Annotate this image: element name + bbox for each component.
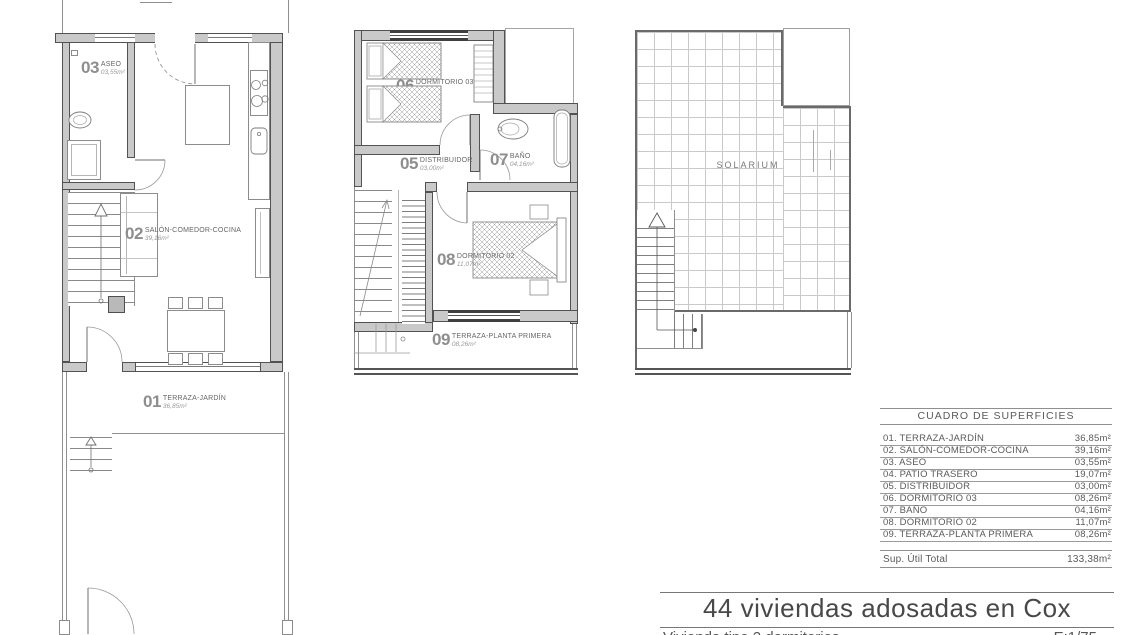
room-label-aseo: 03 ASEO 03,55m² bbox=[81, 60, 125, 76]
room-name: SALÓN-COMEDOR-COCINA bbox=[145, 227, 241, 235]
bed-pillow bbox=[369, 89, 381, 119]
patio-boundary-line bbox=[288, 0, 289, 33]
floor-plan-solarium: SOLARIUM bbox=[632, 22, 872, 380]
row-label: 05. DISTRIBUIDOR bbox=[883, 481, 970, 492]
terrace-parapet bbox=[354, 368, 578, 375]
chair bbox=[208, 297, 223, 309]
dining-table bbox=[167, 310, 225, 352]
tile-mark bbox=[813, 130, 814, 172]
entry-door-swing bbox=[155, 44, 195, 84]
room-number: 03 bbox=[81, 60, 99, 76]
shower-tray bbox=[67, 140, 101, 180]
aseo-sink bbox=[69, 112, 91, 128]
surfaces-table: CUADRO DE SUPERFICIES 01. TERRAZA-JARDÍN… bbox=[878, 403, 1114, 573]
rule-line bbox=[880, 550, 1112, 551]
parapet bbox=[635, 368, 851, 375]
chair bbox=[168, 297, 183, 309]
room-area: 36,85m² bbox=[163, 403, 226, 410]
total-value: 133,38m² bbox=[1067, 554, 1111, 565]
terrace-wall-line bbox=[62, 372, 63, 635]
room-name: ASEO bbox=[101, 61, 125, 69]
wardrobe bbox=[474, 45, 493, 102]
terrace-wall-line bbox=[572, 324, 573, 368]
row-value: 19,07m² bbox=[1075, 469, 1111, 480]
wall-segment bbox=[425, 182, 437, 192]
stair-divider-line bbox=[398, 190, 399, 322]
terrace-steps-mark bbox=[401, 337, 405, 341]
stair-edge-line bbox=[702, 314, 703, 349]
patio-boundary-line bbox=[62, 0, 63, 33]
wall-segment bbox=[122, 362, 136, 372]
room-label-text: TERRAZA-JARDÍN 36,85m² bbox=[163, 394, 226, 410]
toilet-bowl bbox=[501, 123, 519, 135]
row-value: 11,07m² bbox=[1075, 517, 1111, 528]
row-label: 08. DORMITORIO 02 bbox=[883, 517, 977, 528]
room-number: 01 bbox=[143, 394, 161, 410]
row-value: 36,85m² bbox=[1075, 433, 1111, 444]
room-label-dormitorio-02: 08 DORMITORIO 02 11,07m² bbox=[437, 252, 515, 268]
wall-segment bbox=[354, 145, 440, 155]
sideboard bbox=[255, 208, 270, 278]
room-label-text: TERRAZA-PLANTA PRIMERA 08,26m² bbox=[452, 332, 552, 348]
kitchen-counter bbox=[248, 42, 270, 200]
table-total-row: Sup. Útil Total 133,38m² bbox=[880, 552, 1112, 566]
wall-line bbox=[851, 312, 852, 368]
total-label: Sup. Útil Total bbox=[883, 554, 948, 565]
room-number: 05 bbox=[400, 156, 418, 172]
room-area: 08,26m² bbox=[452, 341, 552, 348]
bed-fold bbox=[522, 224, 557, 276]
room-name: TERRAZA-PLANTA PRIMERA bbox=[452, 333, 552, 341]
kitchen-island bbox=[185, 85, 230, 145]
drawing-scale: E:1/75 bbox=[1054, 629, 1097, 635]
row-label: 04. PATIO TRASERO bbox=[883, 469, 978, 480]
surfaces-rows: 01. TERRAZA-JARDÍN36,85m² 02. SALÓN-COME… bbox=[880, 434, 1112, 542]
terrace-wall-line bbox=[288, 372, 289, 635]
table-row: 09. TERRAZA-PLANTA PRIMERA08,26m² bbox=[880, 530, 1112, 542]
bedroom2-door-swing bbox=[437, 192, 467, 223]
bed-fold bbox=[383, 43, 401, 79]
row-label: 01. TERRAZA-JARDÍN bbox=[883, 433, 984, 444]
wardrobe-shelves bbox=[474, 51, 493, 93]
room-label-text: SALÓN-COMEDOR-COCINA 39,16m² bbox=[145, 226, 241, 242]
row-value: 08,26m² bbox=[1075, 493, 1111, 504]
wall-segment bbox=[493, 103, 578, 114]
chair bbox=[168, 353, 183, 365]
room-label-text: ASEO 03,55m² bbox=[101, 60, 125, 76]
staircase-down bbox=[355, 190, 392, 322]
wall-segment bbox=[354, 30, 362, 187]
room-name: DORMITORIO 03 bbox=[416, 79, 474, 87]
room-name: TERRAZA-JARDÍN bbox=[163, 395, 226, 403]
rule-line bbox=[880, 408, 1112, 409]
bathtub bbox=[554, 110, 570, 167]
room-label-text: DORMITORIO 03 08,26m² bbox=[416, 78, 474, 94]
room-label-terraza-pp: 09 TERRAZA-PLANTA PRIMERA 08,26m² bbox=[432, 332, 552, 348]
single-bed bbox=[367, 43, 441, 79]
room-label-text: DORMITORIO 02 11,07m² bbox=[457, 252, 515, 268]
open-void bbox=[783, 28, 850, 106]
wall-segment bbox=[270, 42, 283, 362]
gate-post bbox=[59, 620, 70, 635]
gate-post bbox=[282, 620, 293, 635]
room-area: 03,55m² bbox=[101, 69, 125, 76]
room-number: 07 bbox=[490, 152, 508, 168]
open-void bbox=[505, 28, 574, 106]
room-area: 08,26m² bbox=[416, 87, 474, 94]
aseo-door-swing bbox=[135, 160, 165, 190]
room-name: DORMITORIO 02 bbox=[457, 253, 515, 261]
wall-segment bbox=[62, 182, 135, 190]
room-label-distribuidor: 05 DISTRIBUIDOR 03,00m² bbox=[400, 156, 473, 172]
row-value: 39,16m² bbox=[1075, 445, 1111, 456]
room-label-salon: 02 SALÓN-COMEDOR-COCINA 39,16m² bbox=[125, 226, 241, 242]
stove bbox=[250, 70, 268, 116]
room-area: 39,16m² bbox=[145, 235, 241, 242]
row-label: 02. SALÓN-COMEDOR-COCINA bbox=[883, 445, 1029, 456]
terrace-door-swing bbox=[87, 327, 122, 362]
window bbox=[390, 30, 468, 41]
terrace-wall-line bbox=[284, 372, 285, 635]
room-area: 11,07m² bbox=[457, 261, 515, 268]
garden-steps bbox=[70, 437, 112, 475]
wall-segment bbox=[260, 362, 283, 372]
wall-segment bbox=[425, 192, 433, 324]
title-block: 44 viviendas adosadas en Cox Vivienda ti… bbox=[660, 585, 1114, 635]
wall-segment bbox=[493, 30, 505, 106]
rule-line bbox=[880, 424, 1112, 425]
room-number: 08 bbox=[437, 252, 455, 268]
toilet-flush bbox=[498, 127, 502, 131]
sideboard-line bbox=[260, 212, 261, 274]
bed-pillow bbox=[369, 46, 381, 76]
room-area: 03,00m² bbox=[420, 165, 473, 172]
patio-boundary-line bbox=[140, 2, 172, 3]
project-title: 44 viviendas adosadas en Cox bbox=[660, 593, 1114, 624]
nightstand bbox=[530, 205, 548, 219]
room-area: 04,16m² bbox=[510, 161, 534, 168]
dwelling-type: Vivienda tipo 2 dormitorios bbox=[663, 629, 839, 635]
room-number: 02 bbox=[125, 226, 143, 242]
row-value: 03,00m² bbox=[1075, 481, 1111, 492]
chair bbox=[188, 297, 203, 309]
sofa-armrest-line bbox=[121, 258, 157, 259]
terrace-boundary-line bbox=[112, 433, 285, 434]
wall-segment bbox=[62, 362, 87, 372]
rule-line bbox=[660, 627, 1114, 628]
tile-mark bbox=[830, 150, 831, 170]
staircase-up bbox=[402, 200, 425, 324]
row-value: 03,55m² bbox=[1075, 457, 1111, 468]
solarium-tiles bbox=[783, 106, 851, 312]
solarium-label: SOLARIUM bbox=[712, 160, 784, 170]
wall-line bbox=[847, 312, 848, 368]
room-name: DISTRIBUIDOR bbox=[420, 157, 473, 165]
chair bbox=[208, 353, 223, 365]
bedroom3-door-swing bbox=[440, 115, 470, 145]
room-label-terraza-jardin: 01 TERRAZA-JARDÍN 36,85m² bbox=[143, 394, 226, 410]
chair bbox=[188, 353, 203, 365]
row-value: 04,16m² bbox=[1075, 505, 1111, 516]
nightstand bbox=[530, 280, 548, 295]
room-label-text: BAÑO 04,16m² bbox=[510, 152, 534, 168]
floor-plan-first: 06 DORMITORIO 03 08,26m² 05 DISTRIBUIDOR… bbox=[352, 22, 578, 380]
row-label: 06. DORMITORIO 03 bbox=[883, 493, 977, 504]
headboard bbox=[557, 218, 566, 282]
surfaces-table-title: CUADRO DE SUPERFICIES bbox=[878, 410, 1114, 422]
row-label: 07. BAÑO bbox=[883, 505, 927, 516]
wall-segment bbox=[127, 42, 135, 158]
stair-turn-treads bbox=[674, 314, 702, 348]
newel-post bbox=[108, 296, 125, 313]
staircase bbox=[637, 228, 674, 314]
rule-line bbox=[880, 567, 1112, 568]
room-number: 09 bbox=[432, 332, 450, 348]
sofa-armrest-line bbox=[121, 212, 157, 213]
terrace-wall-line bbox=[354, 332, 355, 368]
room-label-text: DISTRIBUIDOR 03,00m² bbox=[420, 156, 473, 172]
room-label-bano: 07 BAÑO 04,16m² bbox=[490, 152, 534, 168]
floor-plan-ground: 03 ASEO 03,55m² 02 SALÓN-COMEDOR-COCINA … bbox=[55, 0, 295, 635]
bed-blanket bbox=[383, 43, 441, 79]
toilet bbox=[498, 119, 528, 139]
window bbox=[448, 310, 520, 322]
row-label: 03. ASEO bbox=[883, 457, 926, 468]
double-bed bbox=[473, 222, 557, 278]
wall-segment bbox=[467, 182, 578, 192]
aseo-sink-basin bbox=[74, 116, 87, 125]
room-number: 06 bbox=[396, 78, 414, 94]
window bbox=[208, 33, 252, 43]
gate-door-swing bbox=[88, 588, 134, 634]
terrace-wall-line bbox=[66, 372, 67, 635]
architectural-drawing-sheet: 03 ASEO 03,55m² 02 SALÓN-COMEDOR-COCINA … bbox=[0, 0, 1130, 635]
bathtub-inner bbox=[557, 113, 568, 164]
row-value: 08,26m² bbox=[1075, 529, 1111, 540]
terrace-wall-line bbox=[358, 332, 359, 368]
wall-segment bbox=[570, 114, 578, 324]
door-opening bbox=[155, 33, 195, 43]
fixture-mark bbox=[71, 50, 78, 56]
room-name: BAÑO bbox=[510, 153, 534, 161]
row-label: 09. TERRAZA-PLANTA PRIMERA bbox=[883, 529, 1033, 540]
terrace-wall-line bbox=[576, 324, 577, 368]
room-label-dormitorio-03: 06 DORMITORIO 03 08,26m² bbox=[396, 78, 474, 94]
stair-edge-line bbox=[637, 348, 703, 349]
